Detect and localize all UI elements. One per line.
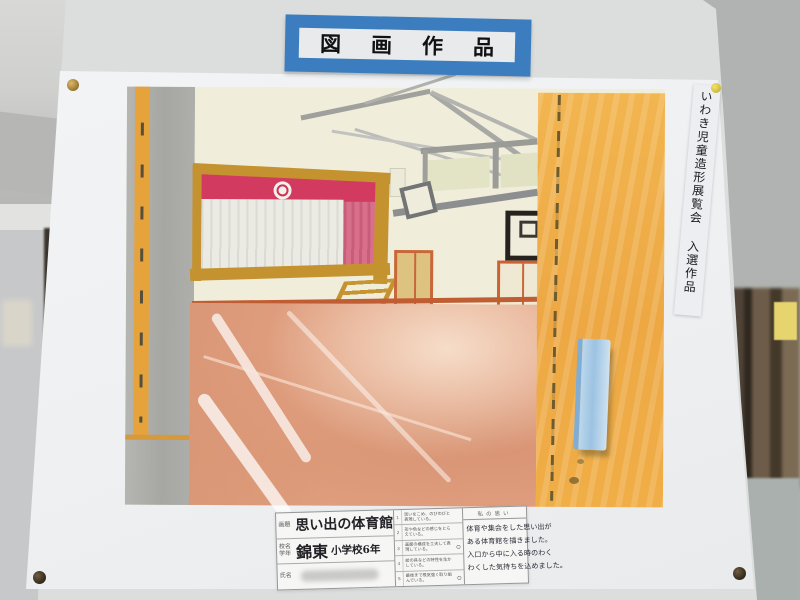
emblem-ring [276,184,288,196]
photo-of-art-display: 図画作品 いわき児童造形展覧会 入選作品 画題 思い出の体育館 校名 学年 錦東… [0,0,800,600]
comment-body: 体育や集会をした思い出が ある体育館を描きました。 入口から中に入る時のわく わ… [463,519,528,585]
yellow-note-in-window [774,302,797,340]
card-title-row: 画題 思い出の体育館 [276,510,394,539]
gymnasium-painting [125,87,665,508]
painted-window-post [493,147,499,189]
name-label: 氏名 [278,573,297,581]
painted-high-window [501,152,538,187]
artwork-title: 思い出の体育館 [295,513,394,536]
pushpin-top-left [67,79,79,91]
checklist-mark [454,555,463,570]
painted-shadow-dab [569,477,579,484]
school-grade: 小学校6年 [331,541,381,557]
checklist-text: 画面の構成を工夫して表現している。 [403,539,454,555]
pushpin-bottom-right [733,567,746,580]
checklist-text: 絵の具などの特性を生かしている。 [403,555,454,571]
art-works-banner: 図画作品 [284,14,531,76]
school-label: 校名 学年 [277,544,296,559]
checklist-mark [453,524,462,539]
window-scenery-highlight [2,300,32,346]
card-comment-column: 私の思い 体育や集会をした思い出が ある体育館を描きました。 入口から中に入る時… [462,507,528,585]
checklist-text: 思いをこめ、のびのびと表現している。 [402,509,453,525]
checklist-mark: ○ [455,570,464,585]
banner-white-strip: 図画作品 [299,28,516,63]
painted-band-crossline [125,435,193,440]
backboard-inner-square [519,221,538,238]
card-school-row: 校名 学年 錦東 小学校6年 [277,536,395,565]
pushpin-top-right [711,83,721,93]
blurred-student-name [301,569,379,582]
checklist-row: 5 最後まで根気強く取り組んでいる。 ○ [396,570,464,586]
card-name-row: 氏名 [277,562,395,590]
pushpin-bottom-left [33,571,46,584]
painted-high-window [428,156,490,191]
checklist-text: 形や色などの感じをとらえている。 [402,524,453,540]
painted-blue-door-plate [573,338,610,450]
painted-gym-floor [189,303,537,507]
card-identity-column: 画題 思い出の体育館 校名 学年 錦東 小学校6年 氏名 [276,510,396,589]
painted-stage-back-wall [201,199,343,272]
artwork-label-card: 画題 思い出の体育館 校名 学年 錦東 小学校6年 氏名 1 思いをこめ、のびの… [275,505,529,590]
checklist-mark [453,508,462,523]
checklist-mark: ○ [454,539,463,554]
banner-text: 図画作品 [320,28,525,62]
painted-shadow-dab [577,459,584,464]
checklist-text: 最後まで根気強く取り組んでいる。 [404,570,455,586]
school-name: 錦東 [296,538,329,563]
card-checklist-column: 1 思いをこめ、のびのびと表現している。 2 形や色などの感じをとらえている。 … [394,508,464,586]
comment-line: わくした気持ちを込めました。 [467,560,525,575]
title-label: 画題 [276,522,295,530]
